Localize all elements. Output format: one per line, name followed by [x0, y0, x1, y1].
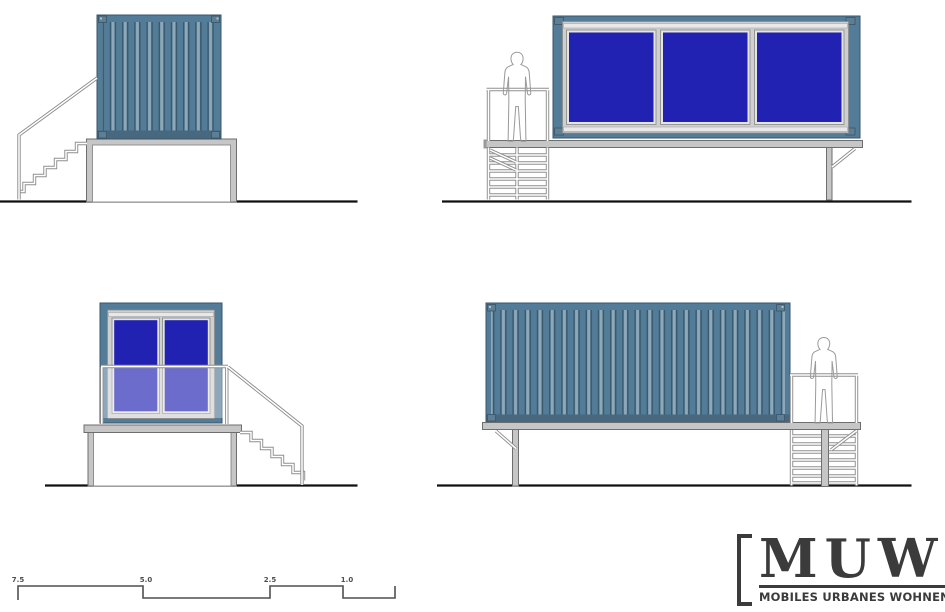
- foundation-base: [84, 425, 242, 486]
- scale-bar: 7.5 5.0 2.5 1.0: [12, 576, 395, 600]
- view-front-elevation: [442, 16, 912, 202]
- human-figure-standing: [810, 338, 837, 424]
- window-pane-2: [661, 30, 751, 125]
- scale-bar-line: [18, 586, 395, 600]
- stair-ladder: [489, 148, 548, 200]
- container-front: [553, 16, 860, 138]
- foundation-base: [87, 139, 237, 202]
- scale-label-5-0: 5.0: [140, 576, 153, 584]
- container-corrugated-side: [486, 303, 790, 423]
- ladder-center-post: [822, 430, 829, 487]
- view-end-elevation-stairs: [0, 15, 358, 202]
- scale-label-7-5: 7.5: [12, 576, 25, 584]
- drawing-sheet: 7.5 5.0 2.5 1.0 MUW MOBILES URBANES WOHN…: [0, 0, 945, 612]
- stair-ladder: [792, 430, 857, 487]
- logo-bracket-left-icon: [737, 534, 752, 606]
- glass-balustrade-panel: [101, 368, 228, 418]
- muw-logo: MUW MOBILES URBANES WOHNEN: [737, 534, 945, 606]
- window-pane-3: [755, 30, 845, 125]
- stairs: [240, 433, 304, 481]
- platform-bracket: [484, 140, 487, 149]
- stair-railing: [19, 78, 97, 200]
- logo-acronym: MUW: [759, 535, 945, 583]
- window-pane-1: [567, 30, 657, 125]
- container-end-window: [100, 303, 227, 423]
- support-leg-left: [496, 430, 519, 487]
- view-end-elevation-balcony: [45, 303, 358, 486]
- window-band: [563, 22, 849, 134]
- deck-platform: [483, 423, 861, 430]
- balcony-railing: [790, 375, 858, 423]
- view-rear-elevation: [437, 303, 912, 487]
- scale-label-2-5: 2.5: [264, 576, 277, 584]
- balcony-railing: [487, 90, 550, 142]
- stairs: [19, 144, 87, 192]
- support-leg-right: [827, 148, 856, 201]
- logo-subtitle: MOBILES URBANES WOHNEN: [759, 588, 945, 604]
- container-corrugated-end: [97, 15, 221, 139]
- deck-platform: [484, 140, 863, 149]
- human-figure-standing: [503, 52, 530, 141]
- logo-text-block: MUW MOBILES URBANES WOHNEN: [759, 534, 945, 606]
- elevation-drawing: 7.5 5.0 2.5 1.0: [0, 0, 945, 612]
- scale-label-1-0: 1.0: [341, 576, 354, 584]
